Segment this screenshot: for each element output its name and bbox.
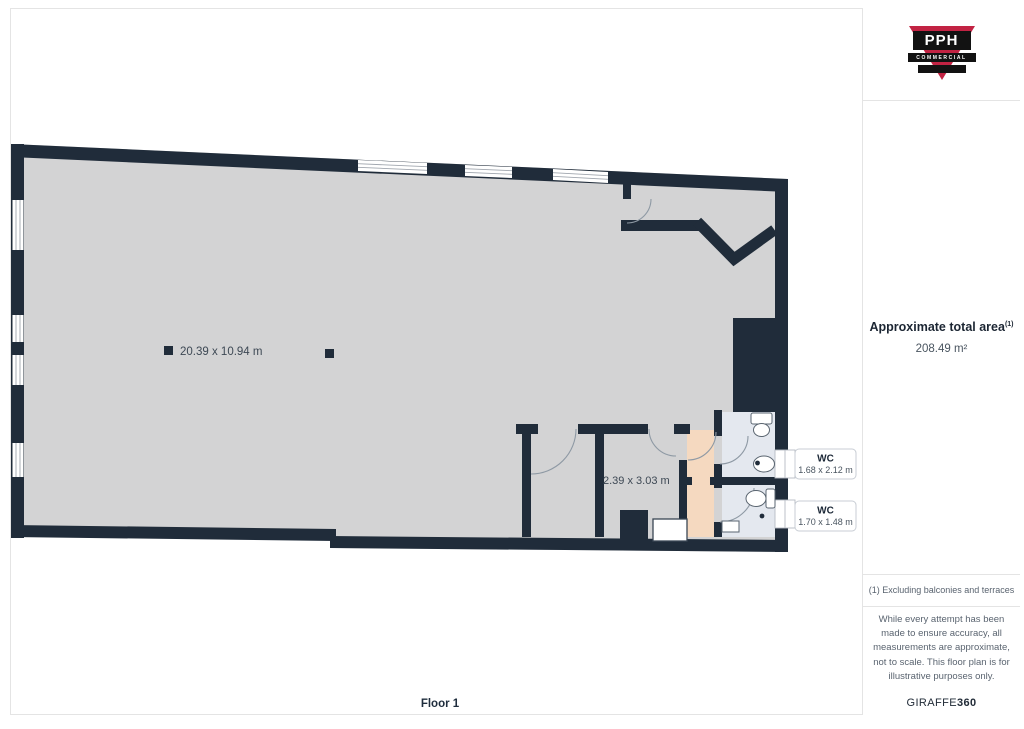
window — [775, 450, 795, 478]
column — [325, 349, 334, 358]
vestibule-door-jamb — [623, 184, 631, 199]
disclaimer-text: While every attempt has been made to ens… — [872, 613, 1011, 684]
wc-divider-a — [679, 477, 692, 485]
brand-name: GIRAFFE — [906, 697, 956, 709]
wc1-callout: WC 1.68 x 2.12 m — [795, 449, 856, 479]
bottom-wall-block — [620, 510, 648, 542]
wc2-toilet-bowl — [746, 491, 766, 507]
vestibule-wall — [621, 220, 701, 231]
partition-v-a — [522, 424, 531, 537]
area-title-superscript: (1) — [1005, 321, 1014, 328]
wc2-cistern — [766, 489, 775, 508]
area-title-text: Approximate total area — [869, 320, 1004, 334]
corridor-wall-right-a — [714, 410, 722, 436]
window — [465, 165, 512, 178]
area-title: Approximate total area(1) — [869, 320, 1013, 334]
wc2-callout: WC 1.70 x 1.48 m — [795, 501, 856, 531]
wc2-label: WC — [817, 506, 834, 517]
corridor-wall-right-c — [714, 522, 722, 537]
window — [13, 355, 24, 385]
logo-acronym: PPH — [913, 31, 971, 50]
window — [13, 443, 24, 477]
floor-title: Floor 1 — [360, 698, 520, 710]
area-section: Approximate total area(1) 208.49 m² — [863, 101, 1020, 574]
wc1-cistern — [751, 413, 772, 424]
brand-suffix: 360 — [957, 697, 977, 709]
cabinet — [653, 519, 687, 541]
footnote-text: (1) Excluding balconies and terraces — [869, 585, 1015, 595]
partition-h1-c — [674, 424, 690, 434]
logo-section: PPH COMMERCIAL — [863, 8, 1020, 101]
main-room-dims-label: 20.39 x 10.94 m — [180, 346, 262, 358]
pph-commercial-logo: PPH COMMERCIAL — [908, 26, 976, 82]
inner-room-dims-label: 2.39 x 3.03 m — [603, 475, 670, 487]
area-value: 208.49 m² — [916, 343, 968, 355]
wc2-dims: 1.70 x 1.48 m — [798, 517, 853, 527]
wc2-drain-dot — [760, 514, 765, 519]
wc2-sink — [722, 521, 739, 532]
floor-plan: 20.39 x 10.94 m 2.39 x 3.03 m WC 1.68 x … — [0, 0, 860, 724]
window — [13, 315, 24, 342]
main-floor — [11, 144, 788, 552]
disclaimer-section: While every attempt has been made to ens… — [863, 607, 1020, 715]
wc1-dims: 1.68 x 2.12 m — [798, 465, 853, 475]
window — [775, 500, 795, 528]
logo-word: COMMERCIAL — [908, 53, 976, 62]
right-wall-block — [733, 318, 788, 412]
column-marker — [164, 346, 173, 355]
footnote-section: (1) Excluding balconies and terraces — [863, 575, 1020, 607]
wc1-label: WC — [817, 454, 834, 465]
partition-h1-b — [578, 424, 648, 434]
giraffe360-brand: GIRAFFE360 — [906, 697, 976, 709]
info-panel: PPH COMMERCIAL Approximate total area(1)… — [862, 8, 1020, 715]
wc1-toilet-bowl — [754, 424, 770, 437]
window — [13, 200, 24, 250]
floor-plan-svg: 20.39 x 10.94 m 2.39 x 3.03 m WC 1.68 x … — [0, 0, 860, 724]
logo-bar — [918, 65, 966, 73]
wc1-drain-dot — [755, 461, 760, 466]
